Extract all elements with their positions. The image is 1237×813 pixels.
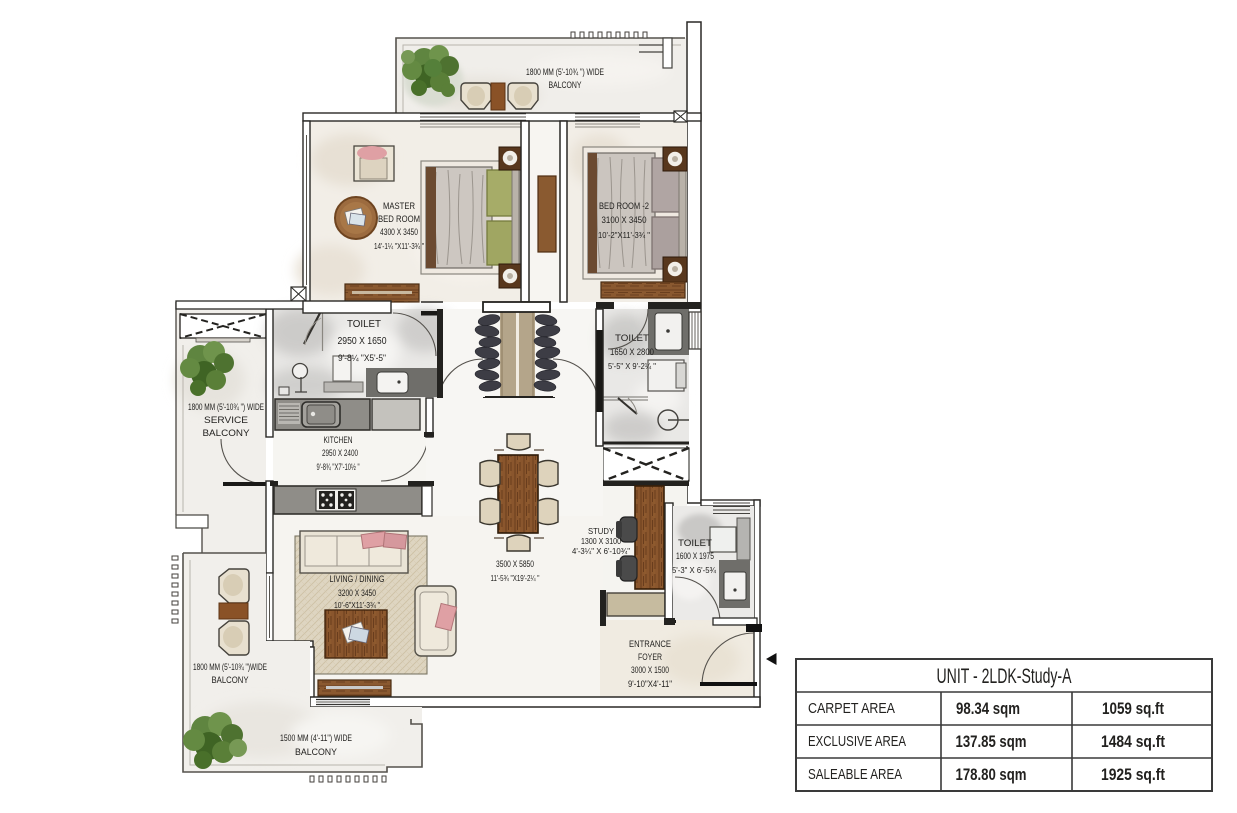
svg-text:1600 X 1975: 1600 X 1975 <box>676 551 714 561</box>
svg-text:CARPET AREA: CARPET AREA <box>808 700 895 717</box>
svg-text:1925 sq.ft: 1925 sq.ft <box>1101 766 1165 784</box>
svg-text:3500 X 5850: 3500 X 5850 <box>496 559 534 569</box>
svg-text:1300 X 3100: 1300 X 3100 <box>581 536 621 546</box>
svg-text:3200 X 3450: 3200 X 3450 <box>338 588 376 598</box>
svg-text:EXCLUSIVE AREA: EXCLUSIVE AREA <box>808 733 906 750</box>
svg-text:BALCONY: BALCONY <box>203 428 250 438</box>
svg-text:KITCHEN: KITCHEN <box>324 435 353 445</box>
svg-text:137.85 sqm: 137.85 sqm <box>956 733 1027 751</box>
svg-text:1059 sq.ft: 1059 sq.ft <box>1102 700 1164 718</box>
svg-text:5'-3" X 6'-5¾: 5'-3" X 6'-5¾ <box>672 565 717 575</box>
svg-text:BED ROOM: BED ROOM <box>378 214 420 224</box>
svg-text:1800 MM (5'-10¾ ")WIDE: 1800 MM (5'-10¾ ")WIDE <box>193 662 267 672</box>
svg-text:SALEABLE AREA: SALEABLE AREA <box>808 766 902 783</box>
svg-text:3100 X 3450: 3100 X 3450 <box>602 215 647 225</box>
svg-text:4'-3¼" X 6'-10¾": 4'-3¼" X 6'-10¾" <box>572 547 630 556</box>
svg-text:BED ROOM -2: BED ROOM -2 <box>599 201 649 211</box>
svg-text:2950 X 1650: 2950 X 1650 <box>338 336 387 347</box>
svg-text:1800 MM (5'-10¾ ") WIDE: 1800 MM (5'-10¾ ") WIDE <box>188 402 264 412</box>
svg-text:FOYER: FOYER <box>638 652 662 662</box>
svg-text:BALCONY: BALCONY <box>295 747 337 757</box>
svg-text:TOILET: TOILET <box>347 319 381 330</box>
svg-text:10'-2"X11'-3¾ ": 10'-2"X11'-3¾ " <box>598 230 650 240</box>
svg-text:SERVICE: SERVICE <box>204 415 248 425</box>
svg-text:BALCONY: BALCONY <box>212 675 249 685</box>
svg-text:1800 MM (5'-10¾ ") WIDE: 1800 MM (5'-10¾ ") WIDE <box>526 67 604 77</box>
svg-text:ENTRANCE: ENTRANCE <box>629 639 671 649</box>
svg-text:178.80 sqm: 178.80 sqm <box>956 766 1027 784</box>
svg-text:2950 X 2400: 2950 X 2400 <box>322 448 358 458</box>
svg-text:98.34 sqm: 98.34 sqm <box>956 700 1020 718</box>
svg-text:9'-8¾ "X7'-10½ ": 9'-8¾ "X7'-10½ " <box>317 462 360 472</box>
svg-text:14'-1¼ "X11'-3¾ ": 14'-1¼ "X11'-3¾ " <box>374 241 424 251</box>
svg-text:TOILET: TOILET <box>615 333 649 344</box>
svg-text:UNIT - 2LDK-Study-A: UNIT - 2LDK-Study-A <box>937 665 1072 688</box>
svg-text:STUDY: STUDY <box>588 526 614 536</box>
svg-text:MASTER: MASTER <box>383 201 415 211</box>
svg-text:1484 sq.ft: 1484 sq.ft <box>1101 733 1165 751</box>
svg-text:BALCONY: BALCONY <box>549 80 582 90</box>
svg-text:5'-5" X 9'-2¼ ": 5'-5" X 9'-2¼ " <box>608 361 656 371</box>
svg-text:1500 MM (4'-11") WIDE: 1500 MM (4'-11") WIDE <box>280 733 352 743</box>
svg-text:4300 X 3450: 4300 X 3450 <box>380 227 418 237</box>
svg-text:3000 X 1500: 3000 X 1500 <box>631 665 669 675</box>
svg-text:9'-10"X4'-11": 9'-10"X4'-11" <box>628 679 672 689</box>
svg-text:LIVING / DINING: LIVING / DINING <box>330 574 385 584</box>
svg-text:9'-8¼ "X5'-5": 9'-8¼ "X5'-5" <box>338 353 386 363</box>
svg-text:TOILET: TOILET <box>678 538 713 548</box>
svg-text:10'-6"X11'-3¾ ": 10'-6"X11'-3¾ " <box>334 600 380 610</box>
svg-text:11'-5¾ "X19'-2¼ ": 11'-5¾ "X19'-2¼ " <box>491 573 540 583</box>
